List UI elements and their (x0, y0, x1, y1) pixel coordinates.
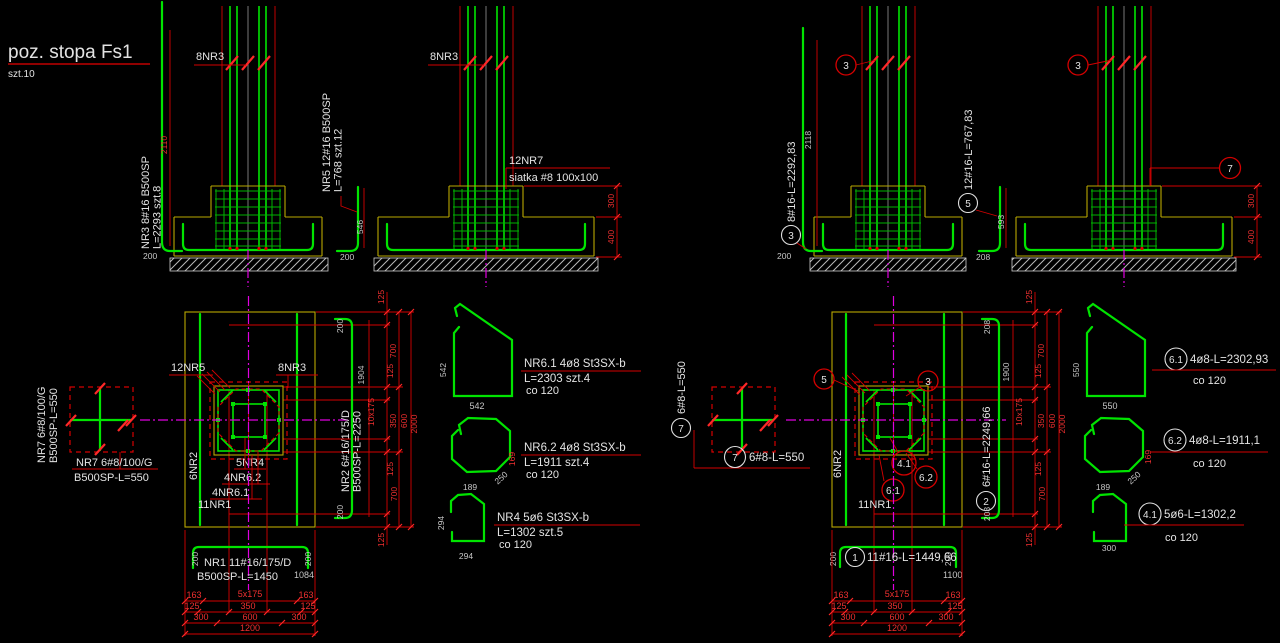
label-8nr3: 8NR3 (278, 362, 306, 374)
nr1-name: NR1 11#16/175/D (204, 557, 291, 569)
nr4-dim-left: 294 (436, 516, 446, 530)
dim-300: 300 (1246, 194, 1256, 208)
left-bar-details: 542 542 NR6.1 4ø8 St3SX-b L=2303 szt.4 c… (436, 304, 641, 561)
bar-nr3-length: L=2293 szt.8 (152, 186, 164, 249)
mesh-label-1: 12NR7 (509, 155, 543, 167)
nr7-rot-label: 6#8-L=550 (676, 361, 688, 414)
nr7-label-2: B500SP-L=550 (74, 472, 149, 484)
label-no-41: 4.1 (1143, 510, 1157, 521)
nr2-length: B500SP-L=2250 (352, 411, 364, 492)
d61-dim-bottom: 550 (1102, 401, 1117, 411)
d41-spacing: co 120 (1165, 532, 1198, 544)
title-block: poz. stopa Fs1 szt.10 (8, 42, 150, 80)
vdim: 125 (376, 290, 386, 304)
shape-62 (1085, 418, 1143, 472)
nr1-dim: 1084 (294, 570, 314, 580)
label-no-1: 1 (852, 553, 858, 564)
callout-3: 3 (843, 61, 849, 72)
bar-nr5-shape (337, 187, 358, 251)
left-elevation-front: 8NR3 NR3 8#16 B500SP L=2293 szt.8 2110 2… (140, 2, 328, 287)
bars-label: 8NR3 (196, 51, 224, 63)
vdim: 2000 (409, 414, 419, 433)
page-title: poz. stopa Fs1 (8, 42, 133, 63)
nr61-dim-bottom: 542 (469, 401, 484, 411)
label-no-7b: 7 (732, 453, 738, 464)
bar-nr3-shape (162, 2, 182, 251)
hdim: 600 (242, 612, 257, 622)
dim-300: 300 (606, 194, 616, 208)
bar-nr5-hook: 200 (340, 252, 354, 262)
bar-nr5-dim: 546 (355, 220, 365, 234)
vdim: 125 (376, 533, 386, 547)
shape-nr61 (454, 304, 512, 396)
vdim: 700 (389, 487, 399, 501)
right-elevation-front: 3 3 8#16-L=2292,83 2118 200 (777, 6, 966, 287)
hdim: 300 (193, 612, 208, 622)
bar-3-dim: 2118 (803, 131, 813, 150)
left-elevation-side: 8NR3 NR5 12#16 B500SP L=768 szt.12 546 2… (321, 6, 622, 287)
vdim: 2000 (1057, 414, 1067, 433)
hdim: 350 (887, 601, 902, 611)
d61-dim-left: 550 (1071, 363, 1081, 377)
left-nr7-detail: NR7 6#8/100/G B500SP-L=550 NR7 6#8/100/G… (36, 383, 158, 484)
bars-label: 8NR3 (430, 51, 458, 63)
bar1-dim: 1100 (943, 570, 962, 580)
hdim: 600 (889, 612, 904, 622)
hdim: 125 (831, 601, 846, 611)
label-4nr61: 4NR6.1 (212, 487, 249, 499)
label-no-62: 6.2 (1168, 436, 1182, 447)
d61-label: 4ø8-L=2302,93 (1190, 354, 1268, 366)
callout-5: 5 (821, 375, 827, 386)
bar-nr3-hook: 200 (143, 251, 157, 261)
hdim: 163 (186, 590, 201, 600)
nr61-spacing: co 120 (526, 385, 559, 397)
ground-hatch (170, 258, 328, 271)
shape-nr62 (452, 418, 510, 472)
hdim: 5x175 (885, 589, 910, 599)
bar-3-label: 8#16-L=2292,83 (786, 142, 798, 222)
nr62-dim-bottom: 189 (463, 482, 477, 492)
bar1-hook-left: 200 (828, 552, 838, 566)
hdim: 1200 (887, 623, 907, 633)
vdim: 10x175 (366, 398, 376, 426)
mesh-label-2: siatka #8 100x100 (509, 172, 598, 184)
bar-nr5-name: NR5 12#16 B500SP (321, 93, 333, 192)
label-no-2: 2 (983, 497, 989, 508)
hdim: 163 (298, 590, 313, 600)
hdim: 163 (945, 590, 960, 600)
vdim: 125 (385, 462, 395, 476)
right-bar-details: 550 550 6.1 4ø8-L=2302,93 co 120 189 250… (1071, 304, 1276, 553)
nr62-length: L=1911 szt.4 (524, 457, 590, 469)
callout-3: 3 (925, 377, 931, 388)
cad-drawing-viewport: poz. stopa Fs1 szt.10 8NR3 NR3 8#16 B500… (0, 0, 1280, 643)
label-no-7: 7 (678, 424, 684, 435)
bar2-hook-top: 208 (982, 320, 992, 334)
nr7-rot-label-2: B500SP-L=550 (48, 388, 60, 463)
vdim: 350 (388, 414, 398, 428)
nr2-name: NR2 6#16/175/D (340, 410, 352, 492)
hdim: 300 (938, 612, 953, 622)
label-6nr2: 6NR2 (832, 450, 844, 478)
bar1-label: 11#16-L=1449,66 (867, 552, 957, 564)
label-no-61: 6.1 (1169, 355, 1183, 366)
right-elevation-side: 3 5 12#16-L=767,83 593 208 7 300 400 (959, 6, 1263, 287)
nr2-hook-bot: 200 (335, 505, 345, 519)
hdim: 125 (947, 601, 962, 611)
shape-nr4 (451, 494, 484, 541)
vdim: 10x175 (1014, 398, 1024, 426)
drawing-canvas: poz. stopa Fs1 szt.10 8NR3 NR3 8#16 B500… (0, 0, 1280, 643)
nr7-rot-label-1: NR7 6#8/100/G (36, 387, 48, 463)
hdim: 125 (300, 601, 315, 611)
d62-label: 4ø8-L=1911,1 (1189, 435, 1260, 447)
vdim: 700 (388, 344, 398, 358)
nr2-hook-top: 200 (335, 319, 345, 333)
label-4nr62: 4NR6.2 (224, 472, 261, 484)
nr62-dim-right: 169 (507, 452, 517, 466)
bar2-label: 6#16-L=2249,66 (981, 407, 993, 487)
label-no-3: 3 (788, 231, 794, 242)
label-12nr5: 12NR5 (171, 362, 205, 374)
shape-61 (1087, 304, 1145, 396)
vdim: 600 (1047, 414, 1057, 428)
nr62-title: NR6.2 4ø8 St3SX-b (524, 442, 626, 454)
callout-3: 3 (1075, 61, 1081, 72)
nr61-dim-left: 542 (438, 363, 448, 377)
hdim: 5x175 (238, 589, 263, 599)
right-bottom-bar: 200 200 1 11#16-L=1449,66 1100 163 5x175… (828, 530, 965, 637)
hdim: 163 (833, 590, 848, 600)
vdim: 125 (1024, 290, 1034, 304)
hdim: 125 (184, 601, 199, 611)
right-nr7-detail: 7 6#8-L=550 7 6#8-L=550 (672, 361, 811, 468)
d62-dim-bottom: 189 (1096, 482, 1110, 492)
dim-400: 400 (606, 230, 616, 244)
bar-nr3-dim: 2110 (159, 136, 169, 155)
callout-62: 6.2 (919, 473, 933, 484)
label-11nr1: 11NR1 (858, 499, 891, 511)
bar2-dim: 1900 (1001, 362, 1011, 381)
nr7-label-1: NR7 6#8/100/G (76, 457, 152, 469)
shape-41 (1093, 494, 1126, 541)
vdim: 125 (1033, 462, 1043, 476)
nr61-length: L=2303 szt.4 (524, 373, 591, 385)
nr1-length: B500SP-L=1450 (197, 571, 278, 583)
dim-400: 400 (1246, 230, 1256, 244)
label-6nr2: 6NR2 (188, 452, 200, 480)
bar-nr3-name: NR3 8#16 B500SP (140, 156, 152, 249)
nr62-spacing: co 120 (526, 469, 559, 481)
bar-5-label: 12#16-L=767,83 (963, 110, 975, 190)
bar-5-hook: 208 (976, 252, 990, 262)
left-bottom-bar: 200 200 NR1 11#16/175/D B500SP-L=1450 10… (182, 530, 318, 637)
callout-41: 4.1 (897, 459, 911, 470)
callout-7: 7 (1227, 164, 1233, 175)
nr4-dim-bottom: 294 (459, 551, 473, 561)
nr4-title: NR4 5ø6 St3SX-b (497, 512, 589, 524)
hdim: 300 (291, 612, 306, 622)
label-no-5: 5 (965, 199, 971, 210)
d41-dim-bottom: 300 (1102, 543, 1116, 553)
hdim: 350 (240, 601, 255, 611)
vdim: 125 (1033, 364, 1043, 378)
piece-count: szt.10 (8, 69, 35, 80)
nr4-length: L=1302 szt.5 (497, 527, 563, 539)
bar-5-dim: 593 (996, 215, 1006, 229)
d41-label: 5ø6-L=1302,2 (1164, 509, 1236, 521)
vdim: 125 (1024, 533, 1034, 547)
nr1-hook-left: 200 (190, 552, 200, 566)
vdim: 350 (1036, 414, 1046, 428)
vdim: 125 (385, 364, 395, 378)
label-11nr1: 11NR1 (198, 499, 231, 511)
vdim: 700 (1036, 344, 1046, 358)
hdim: 300 (840, 612, 855, 622)
vdim: 600 (399, 414, 409, 428)
hdim: 1200 (240, 623, 260, 633)
nr7-h-label: 6#8-L=550 (749, 452, 804, 464)
nr61-title: NR6.1 4ø8 St3SX-b (524, 358, 626, 370)
bar-nr5-length: L=768 szt.12 (333, 129, 345, 192)
bar-3-hook: 200 (777, 251, 791, 261)
nr2-dim: 1904 (356, 365, 366, 384)
label-5nr4: 5NR4 (236, 457, 264, 469)
d61-spacing: co 120 (1193, 375, 1226, 387)
bar2-hook-bot: 208 (982, 507, 992, 521)
vdim: 700 (1037, 487, 1047, 501)
d62-spacing: co 120 (1193, 458, 1226, 470)
nr4-spacing: co 120 (499, 539, 532, 551)
nr1-hook-right: 200 (303, 552, 313, 566)
